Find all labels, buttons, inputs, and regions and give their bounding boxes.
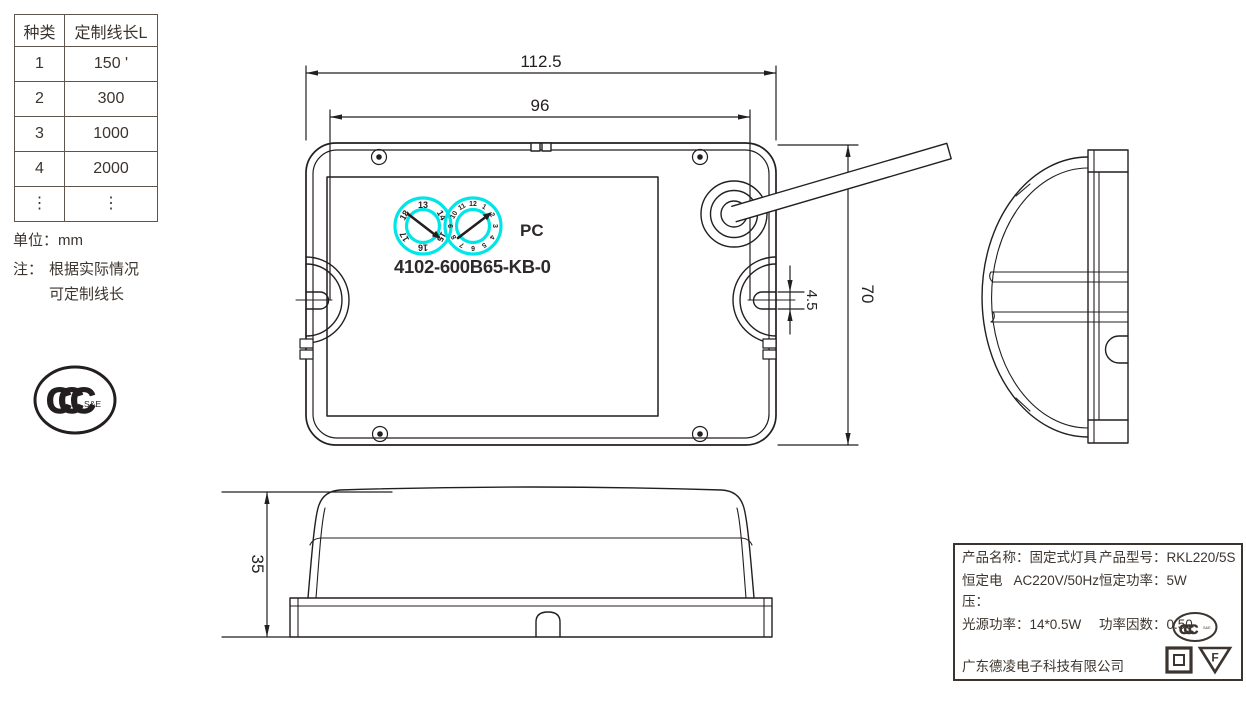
dome-profile — [308, 487, 754, 598]
housing-outer-outline — [306, 143, 776, 445]
ccc-suffix: S&E — [84, 399, 101, 409]
left-keyhole-slot — [296, 257, 349, 359]
ccc-mark-small-icon: CCC S&E — [1174, 613, 1217, 641]
dial1-number: 13 — [418, 200, 428, 210]
dim-70-text: 70 — [858, 285, 877, 304]
f-mark-icon: F — [1200, 648, 1230, 672]
dial2-number: 3 — [491, 224, 498, 228]
front-view-drawing: 35 — [222, 487, 772, 637]
bottom-bump — [536, 612, 560, 637]
double-insulation-icon — [1167, 648, 1191, 672]
dial2-number: 6 — [471, 244, 475, 251]
lens-seam — [310, 538, 752, 545]
base-flange — [290, 598, 772, 637]
label-value: 5W — [1167, 570, 1187, 612]
top-view-drawing: 13 14 15 16 17 18 1 2 — [296, 143, 795, 445]
label-key: 功率因数： — [1099, 614, 1167, 635]
material-label: PC — [520, 221, 544, 240]
model-number-label: 4102-600B65-KB-0 — [394, 256, 551, 277]
label-key: 光源功率： — [962, 614, 1030, 635]
dial2-number: 9 — [448, 224, 455, 228]
dim-35: 35 — [248, 492, 270, 637]
dial1-number: 16 — [418, 243, 428, 253]
dial2-number: 12 — [469, 201, 477, 208]
screw-holes — [372, 150, 708, 442]
label-key: 产品型号： — [1099, 547, 1167, 568]
technical-drawing-sheet: 种类 定制线长L 1 150 ' 2 300 3 1000 4 2000 ⋮ ⋮… — [0, 0, 1246, 701]
label-certification-icons: CCC S&E F — [1163, 611, 1237, 677]
label-row: 恒定电压： AC220V/50Hz 恒定功率： 5W — [955, 570, 1241, 612]
label-key: 产品名称： — [962, 547, 1030, 568]
label-value: 14*0.5W — [1030, 614, 1082, 635]
ccc-certification-logo: CCC S&E — [35, 367, 115, 433]
label-value: AC220V/50Hz — [1013, 570, 1099, 612]
label-row: 产品名称： 固定式灯具 产品型号： RKL220/5S — [955, 547, 1241, 568]
power-cable — [732, 143, 951, 221]
label-key: 恒定电压： — [962, 570, 1013, 612]
ccc-small-letters: CCC — [1179, 621, 1198, 637]
product-label: 产品名称： 固定式灯具 产品型号： RKL220/5S 恒定电压： AC220V… — [953, 543, 1243, 681]
f-mark-letter: F — [1211, 651, 1218, 665]
rotary-dial-1: 13 14 15 16 17 18 — [395, 198, 451, 254]
side-notch — [1106, 336, 1129, 363]
dim-35-text: 35 — [248, 555, 267, 574]
right-keyhole-slot — [733, 257, 795, 359]
ccc-small-suffix: S&E — [1203, 626, 1211, 630]
label-key: 恒定功率： — [1099, 570, 1167, 612]
label-value: 固定式灯具 — [1030, 547, 1098, 568]
top-view-dimensions: 112.5 96 70 — [306, 52, 877, 445]
side-view-drawing — [982, 150, 1128, 443]
rotary-dial-2: 1 2 3 4 5 6 7 8 9 10 11 12 — [445, 198, 501, 254]
housing-inner-outline — [313, 150, 769, 438]
dome-ribs — [990, 272, 1128, 322]
dim-112-5-text: 112.5 — [520, 52, 561, 71]
label-value: RKL220/5S — [1167, 547, 1236, 568]
dim-96-text: 96 — [531, 96, 550, 115]
dome-outer-arc — [982, 157, 1088, 437]
dim-4-5-text: 4.5 — [803, 290, 820, 311]
company-name: 广东德凌电子科技有限公司 — [962, 655, 1124, 675]
